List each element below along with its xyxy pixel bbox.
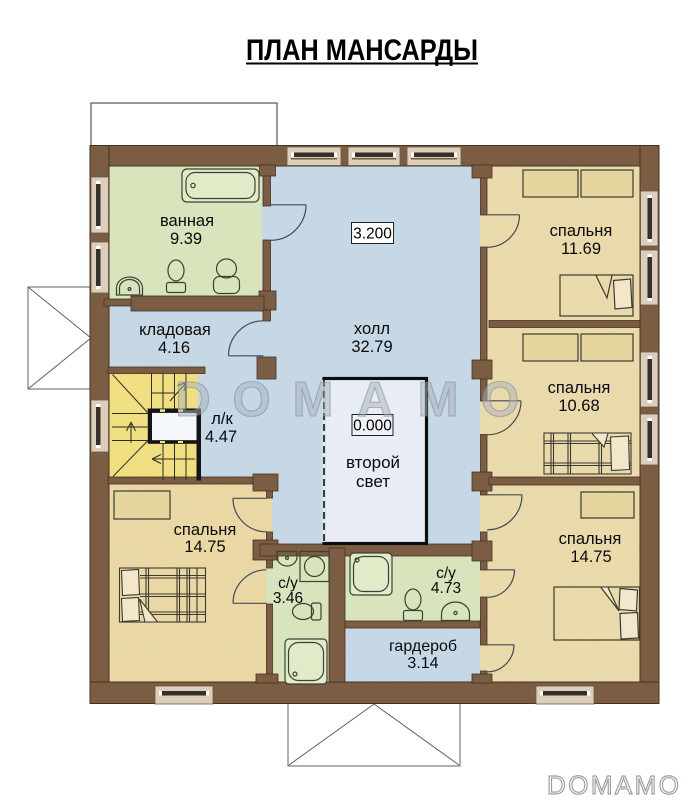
svg-text:второй: второй [346,453,400,472]
svg-text:10.68: 10.68 [558,397,599,415]
svg-text:кладовая: кладовая [139,321,211,339]
svg-text:гардероб: гардероб [389,638,457,655]
svg-text:D: D [175,373,210,427]
svg-text:4.47: 4.47 [205,428,237,446]
svg-text:3.200: 3.200 [353,226,392,243]
svg-text:3.14: 3.14 [407,655,438,672]
svg-text:9.39: 9.39 [170,230,202,248]
svg-text:11.69: 11.69 [561,240,601,258]
svg-text:спальня: спальня [559,530,622,548]
svg-text:4.16: 4.16 [158,339,190,357]
svg-text:A: A [357,373,392,427]
svg-text:O: O [481,373,519,427]
svg-text:ПЛАН МАНСАРДЫ: ПЛАН МАНСАРДЫ [246,34,478,67]
svg-text:спальня: спальня [174,521,237,539]
svg-text:спальня: спальня [548,379,611,397]
svg-text:л/к: л/к [211,410,233,428]
svg-text:14.75: 14.75 [570,548,611,566]
svg-text:холл: холл [354,320,390,338]
svg-text:M: M [293,373,334,427]
svg-text:свет: свет [356,472,390,491]
svg-text:32.79: 32.79 [351,338,392,356]
svg-text:3.46: 3.46 [273,590,303,607]
svg-text:O: O [232,373,270,427]
svg-text:14.75: 14.75 [184,538,225,556]
svg-text:спальня: спальня [550,222,613,240]
svg-text:M: M [418,373,459,427]
svg-text:ванная: ванная [160,212,214,230]
svg-text:4.73: 4.73 [431,580,461,597]
